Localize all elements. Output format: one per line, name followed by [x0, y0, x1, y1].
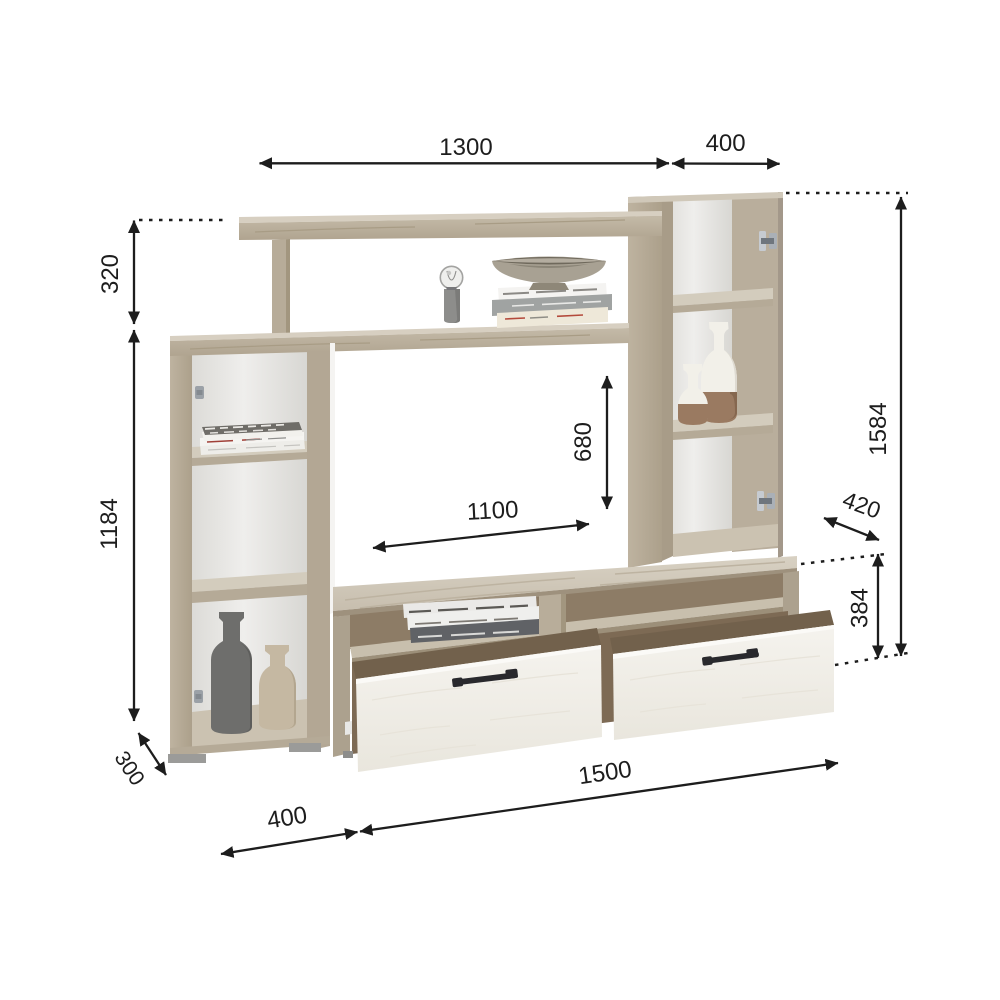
- svg-text:320: 320: [97, 254, 124, 294]
- svg-text:384: 384: [847, 588, 874, 628]
- svg-text:1584: 1584: [865, 402, 892, 455]
- svg-text:1300: 1300: [439, 134, 492, 161]
- svg-text:680: 680: [570, 422, 597, 462]
- svg-text:1100: 1100: [466, 496, 519, 526]
- svg-text:400: 400: [706, 130, 746, 157]
- svg-text:1184: 1184: [96, 498, 123, 550]
